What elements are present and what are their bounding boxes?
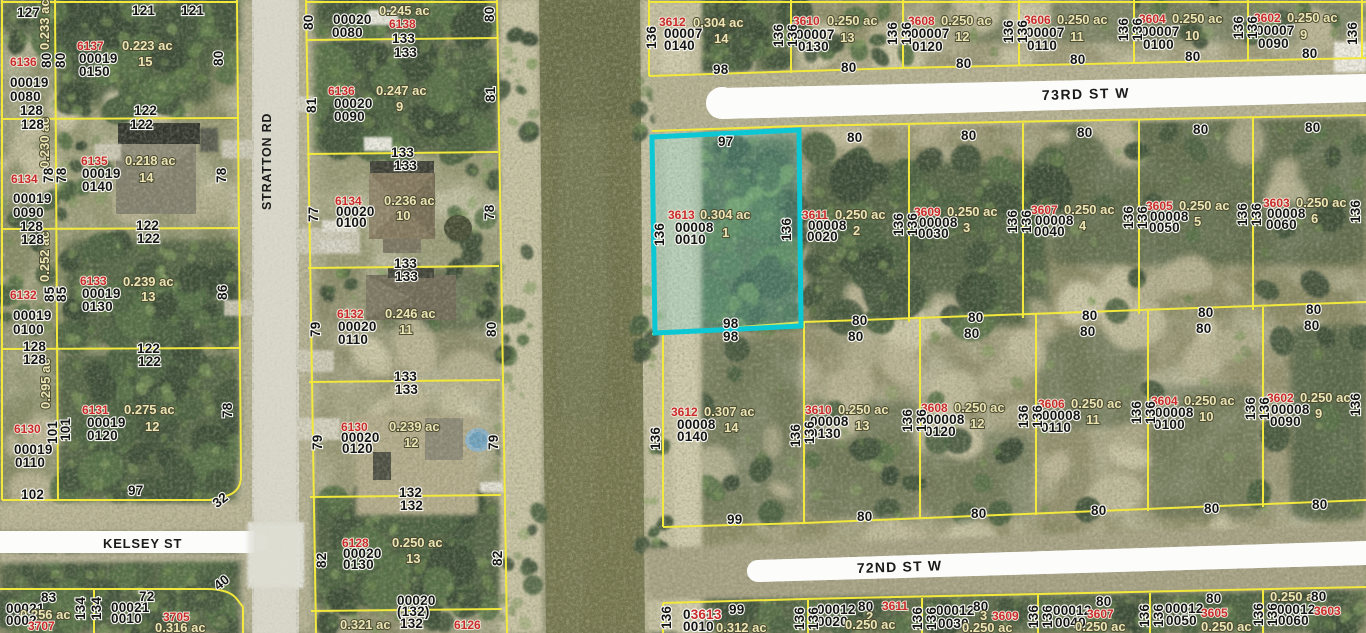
svg-text:133: 133 [394, 158, 417, 173]
svg-text:80: 80 [482, 7, 497, 22]
svg-text:0090: 0090 [1270, 414, 1301, 429]
svg-text:80: 80 [211, 51, 226, 66]
svg-text:136: 136 [1130, 18, 1145, 41]
svg-text:6130: 6130 [14, 422, 41, 436]
svg-text:79: 79 [310, 435, 325, 450]
svg-text:0.250 ac: 0.250 ac [1057, 12, 1108, 27]
svg-text:122: 122 [137, 231, 160, 246]
svg-text:10: 10 [396, 208, 410, 223]
svg-text:10: 10 [1185, 28, 1199, 43]
svg-text:136: 136 [1151, 604, 1166, 627]
svg-text:80: 80 [1204, 501, 1219, 516]
svg-text:0.250 ac: 0.250 ac [827, 13, 878, 28]
svg-text:1: 1 [722, 225, 729, 240]
svg-text:0130: 0130 [82, 299, 113, 314]
svg-text:0.250 ac: 0.250 ac [962, 620, 1013, 633]
svg-text:0100: 0100 [1143, 37, 1174, 52]
svg-text:80: 80 [39, 53, 54, 68]
svg-text:136: 136 [899, 22, 914, 45]
svg-text:13: 13 [141, 289, 155, 304]
svg-text:12: 12 [970, 416, 984, 431]
svg-text:0.239 ac: 0.239 ac [389, 419, 440, 434]
svg-text:136: 136 [1348, 393, 1363, 416]
svg-text:6134: 6134 [11, 172, 38, 186]
svg-text:128: 128 [21, 232, 44, 247]
svg-text:128: 128 [23, 352, 46, 367]
svg-text:12: 12 [955, 29, 969, 44]
svg-text:6132: 6132 [10, 288, 37, 302]
svg-text:12: 12 [145, 419, 159, 434]
svg-text:KELSEY ST: KELSEY ST [103, 536, 182, 551]
svg-text:136: 136 [1231, 16, 1246, 39]
svg-text:0030: 0030 [918, 226, 949, 241]
svg-text:2: 2 [853, 223, 860, 238]
svg-text:133: 133 [395, 269, 418, 284]
svg-text:80: 80 [852, 313, 867, 328]
svg-text:9: 9 [1300, 27, 1307, 42]
svg-text:10: 10 [1199, 409, 1213, 424]
svg-text:00019: 00019 [13, 191, 52, 206]
svg-text:136: 136 [1137, 604, 1152, 627]
svg-text:80: 80 [1306, 302, 1321, 317]
svg-text:136: 136 [1135, 206, 1150, 229]
svg-text:80: 80 [1077, 125, 1092, 140]
svg-text:00019: 00019 [10, 75, 49, 90]
svg-text:0140: 0140 [677, 429, 708, 444]
svg-text:3605: 3605 [1201, 606, 1228, 620]
svg-text:136: 136 [659, 606, 674, 629]
svg-text:3611: 3611 [882, 599, 908, 613]
svg-text:136: 136 [1026, 605, 1041, 628]
svg-text:80: 80 [1193, 122, 1208, 137]
svg-text:136: 136 [891, 213, 906, 236]
svg-text:3603: 3603 [1314, 604, 1341, 618]
svg-text:80: 80 [847, 130, 862, 145]
svg-text:80: 80 [964, 326, 979, 341]
svg-text:80: 80 [1206, 591, 1221, 606]
svg-text:136: 136 [1265, 603, 1280, 626]
svg-text:0.321 ac: 0.321 ac [340, 617, 391, 632]
svg-text:0.250 ac: 0.250 ac [1172, 11, 1223, 26]
svg-text:136: 136 [648, 427, 663, 450]
svg-text:0.250 ac: 0.250 ac [845, 617, 896, 632]
svg-text:14: 14 [724, 420, 739, 435]
svg-text:0.247 ac: 0.247 ac [376, 83, 427, 98]
svg-text:136: 136 [644, 26, 659, 49]
svg-text:14: 14 [714, 31, 729, 46]
svg-text:80: 80 [857, 509, 872, 524]
svg-text:13: 13 [406, 551, 420, 566]
svg-text:0050: 0050 [1166, 613, 1197, 628]
svg-text:80: 80 [484, 322, 499, 337]
svg-text:6126: 6126 [454, 618, 481, 632]
svg-text:86: 86 [215, 284, 230, 300]
svg-text:78: 78 [54, 167, 69, 183]
svg-text:136: 136 [1005, 210, 1020, 233]
svg-text:79: 79 [486, 435, 501, 450]
svg-text:0.250 ac: 0.250 ac [1201, 619, 1252, 633]
svg-text:101: 101 [58, 418, 73, 441]
svg-text:0140: 0140 [82, 179, 113, 194]
svg-text:122: 122 [134, 103, 157, 118]
svg-text:97: 97 [128, 483, 143, 498]
svg-text:136: 136 [905, 213, 920, 236]
svg-text:0010: 0010 [683, 619, 714, 633]
svg-text:0150: 0150 [79, 64, 110, 79]
svg-text:132: 132 [400, 498, 423, 513]
svg-text:136: 136 [1245, 16, 1260, 39]
svg-text:136: 136 [1019, 210, 1034, 233]
svg-text:134: 134 [73, 597, 88, 620]
svg-text:80: 80 [53, 53, 68, 68]
svg-text:136: 136 [785, 24, 800, 47]
svg-text:121: 121 [132, 3, 155, 18]
svg-text:136: 136 [900, 409, 915, 432]
svg-text:80: 80 [848, 329, 863, 344]
svg-text:78: 78 [220, 402, 235, 418]
svg-text:0.246 ac: 0.246 ac [385, 306, 436, 321]
svg-text:0020: 0020 [817, 614, 848, 629]
svg-text:136: 136 [1235, 203, 1250, 226]
svg-text:0100: 0100 [13, 322, 44, 337]
svg-text:0010: 0010 [111, 611, 142, 626]
svg-text:0060: 0060 [1266, 217, 1297, 232]
svg-text:0090: 0090 [13, 205, 44, 220]
svg-text:98: 98 [723, 329, 739, 344]
svg-text:136: 136 [1116, 18, 1131, 41]
svg-text:80: 80 [1302, 46, 1317, 61]
svg-text:6: 6 [1311, 211, 1318, 226]
svg-text:14: 14 [139, 170, 154, 185]
svg-text:13: 13 [840, 30, 854, 45]
svg-text:STRATTON RD: STRATTON RD [260, 113, 274, 210]
svg-text:136: 136 [1257, 397, 1272, 420]
svg-text:99: 99 [727, 512, 742, 527]
svg-text:0140: 0140 [664, 38, 695, 53]
svg-text:136: 136 [1040, 605, 1055, 628]
svg-text:80: 80 [1304, 318, 1319, 333]
svg-text:136: 136 [1016, 405, 1031, 428]
svg-text:102: 102 [21, 487, 44, 502]
svg-text:121: 121 [181, 3, 204, 18]
svg-text:99: 99 [729, 602, 744, 617]
svg-text:136: 136 [924, 607, 939, 630]
svg-text:0120: 0120 [925, 424, 956, 439]
svg-text:0.312 ac: 0.312 ac [716, 620, 767, 633]
svg-text:0.316 ac: 0.316 ac [155, 620, 206, 633]
svg-text:0.233 ac: 0.233 ac [37, 0, 52, 50]
svg-text:133: 133 [392, 31, 415, 46]
svg-text:122: 122 [130, 117, 153, 132]
svg-text:134: 134 [89, 597, 104, 620]
svg-text:80: 80 [1082, 308, 1097, 323]
svg-text:00019: 00019 [13, 308, 52, 323]
svg-text:133: 133 [394, 45, 417, 60]
svg-text:0050: 0050 [1149, 220, 1180, 235]
svg-text:136: 136 [1345, 22, 1360, 45]
svg-text:0080: 0080 [332, 25, 363, 40]
svg-text:0130: 0130 [798, 39, 829, 54]
svg-text:136: 136 [771, 24, 786, 47]
svg-text:0040: 0040 [1034, 224, 1065, 239]
svg-text:136: 136 [779, 218, 794, 241]
svg-text:0.245 ac: 0.245 ac [379, 3, 430, 18]
svg-text:80: 80 [841, 60, 856, 75]
svg-text:0110: 0110 [1041, 420, 1071, 435]
svg-text:5: 5 [1194, 214, 1201, 229]
svg-text:9: 9 [1315, 406, 1322, 421]
svg-text:82: 82 [314, 553, 329, 568]
svg-text:136: 136 [806, 607, 821, 630]
svg-text:80: 80 [301, 15, 316, 30]
svg-text:0.239 ac: 0.239 ac [123, 274, 174, 289]
svg-text:136: 136 [1348, 200, 1363, 223]
svg-text:81: 81 [304, 97, 319, 113]
svg-text:11: 11 [1070, 29, 1084, 44]
svg-text:136: 136 [1249, 203, 1264, 226]
svg-text:0060: 0060 [1278, 613, 1309, 628]
svg-text:136: 136 [1001, 20, 1016, 43]
svg-text:80: 80 [961, 128, 976, 143]
svg-text:136: 136 [1243, 397, 1258, 420]
svg-text:80: 80 [968, 310, 983, 325]
svg-text:0080: 0080 [10, 89, 41, 104]
svg-text:136: 136 [1251, 603, 1266, 626]
svg-text:132: 132 [400, 616, 423, 631]
svg-text:80: 80 [1198, 305, 1213, 320]
svg-text:136: 136 [1015, 20, 1030, 43]
svg-text:80: 80 [956, 56, 971, 71]
svg-text:136: 136 [1143, 401, 1158, 424]
svg-text:0120: 0120 [87, 428, 118, 443]
svg-text:80: 80 [1070, 52, 1085, 67]
svg-text:4: 4 [1079, 218, 1087, 233]
svg-text:72ND ST W: 72ND ST W [857, 557, 943, 576]
svg-text:78: 78 [482, 204, 497, 220]
svg-text:0.218 ac: 0.218 ac [125, 153, 176, 168]
svg-text:3: 3 [963, 220, 970, 235]
svg-text:0100: 0100 [336, 215, 367, 230]
svg-text:80: 80 [1312, 497, 1327, 512]
svg-text:0090: 0090 [334, 109, 365, 124]
svg-text:80: 80 [1185, 49, 1200, 64]
svg-text:73RD ST W: 73RD ST W [1042, 85, 1131, 103]
svg-text:3707: 3707 [28, 619, 55, 633]
svg-text:0010: 0010 [675, 232, 706, 247]
svg-text:85: 85 [54, 286, 69, 302]
svg-text:136: 136 [910, 607, 925, 630]
svg-text:6136: 6136 [10, 55, 37, 69]
svg-text:80: 80 [1080, 324, 1095, 339]
svg-text:136: 136 [914, 409, 929, 432]
svg-text:136: 136 [792, 607, 807, 630]
svg-text:0.250 ac: 0.250 ac [1075, 619, 1126, 633]
svg-text:0.223 ac: 0.223 ac [122, 38, 173, 53]
svg-text:77: 77 [306, 207, 321, 222]
svg-text:0110: 0110 [15, 455, 45, 470]
svg-text:80: 80 [1091, 503, 1106, 518]
svg-text:128: 128 [20, 103, 43, 118]
svg-text:0090: 0090 [1258, 36, 1289, 51]
svg-text:0130: 0130 [343, 557, 374, 572]
svg-text:11: 11 [1086, 412, 1100, 427]
svg-text:0.250 ac: 0.250 ac [392, 535, 443, 550]
svg-text:6138: 6138 [389, 17, 416, 31]
svg-text:136: 136 [1121, 206, 1136, 229]
svg-text:80: 80 [971, 506, 986, 521]
svg-text:0110: 0110 [1027, 38, 1057, 53]
svg-text:133: 133 [395, 382, 418, 397]
svg-text:136: 136 [802, 421, 817, 444]
svg-text:12: 12 [404, 435, 418, 450]
svg-text:128: 128 [21, 117, 44, 132]
svg-text:0.275 ac: 0.275 ac [124, 402, 175, 417]
svg-text:0110: 0110 [338, 332, 368, 347]
svg-text:15: 15 [138, 54, 152, 69]
svg-text:136: 136 [1030, 405, 1045, 428]
svg-text:98: 98 [713, 62, 729, 77]
svg-text:97: 97 [718, 134, 733, 149]
svg-text:0100: 0100 [1154, 417, 1185, 432]
svg-text:13: 13 [855, 418, 869, 433]
svg-text:79: 79 [308, 322, 323, 337]
svg-text:9: 9 [396, 99, 403, 114]
svg-text:82: 82 [490, 551, 505, 566]
svg-text:81: 81 [483, 86, 498, 102]
svg-text:80: 80 [1196, 321, 1211, 336]
svg-text:136: 136 [652, 223, 667, 246]
svg-text:11: 11 [399, 322, 413, 337]
svg-text:0.236 ac: 0.236 ac [384, 193, 435, 208]
svg-text:136: 136 [885, 22, 900, 45]
svg-text:0120: 0120 [912, 39, 943, 54]
svg-text:0020: 0020 [807, 229, 838, 244]
svg-text:0.250 ac: 0.250 ac [1287, 10, 1338, 25]
svg-text:136: 136 [1129, 401, 1144, 424]
svg-text:0120: 0120 [342, 441, 373, 456]
svg-text:80: 80 [1305, 120, 1320, 135]
svg-text:78: 78 [214, 167, 229, 183]
svg-text:136: 136 [788, 424, 803, 447]
svg-text:122: 122 [138, 354, 161, 369]
